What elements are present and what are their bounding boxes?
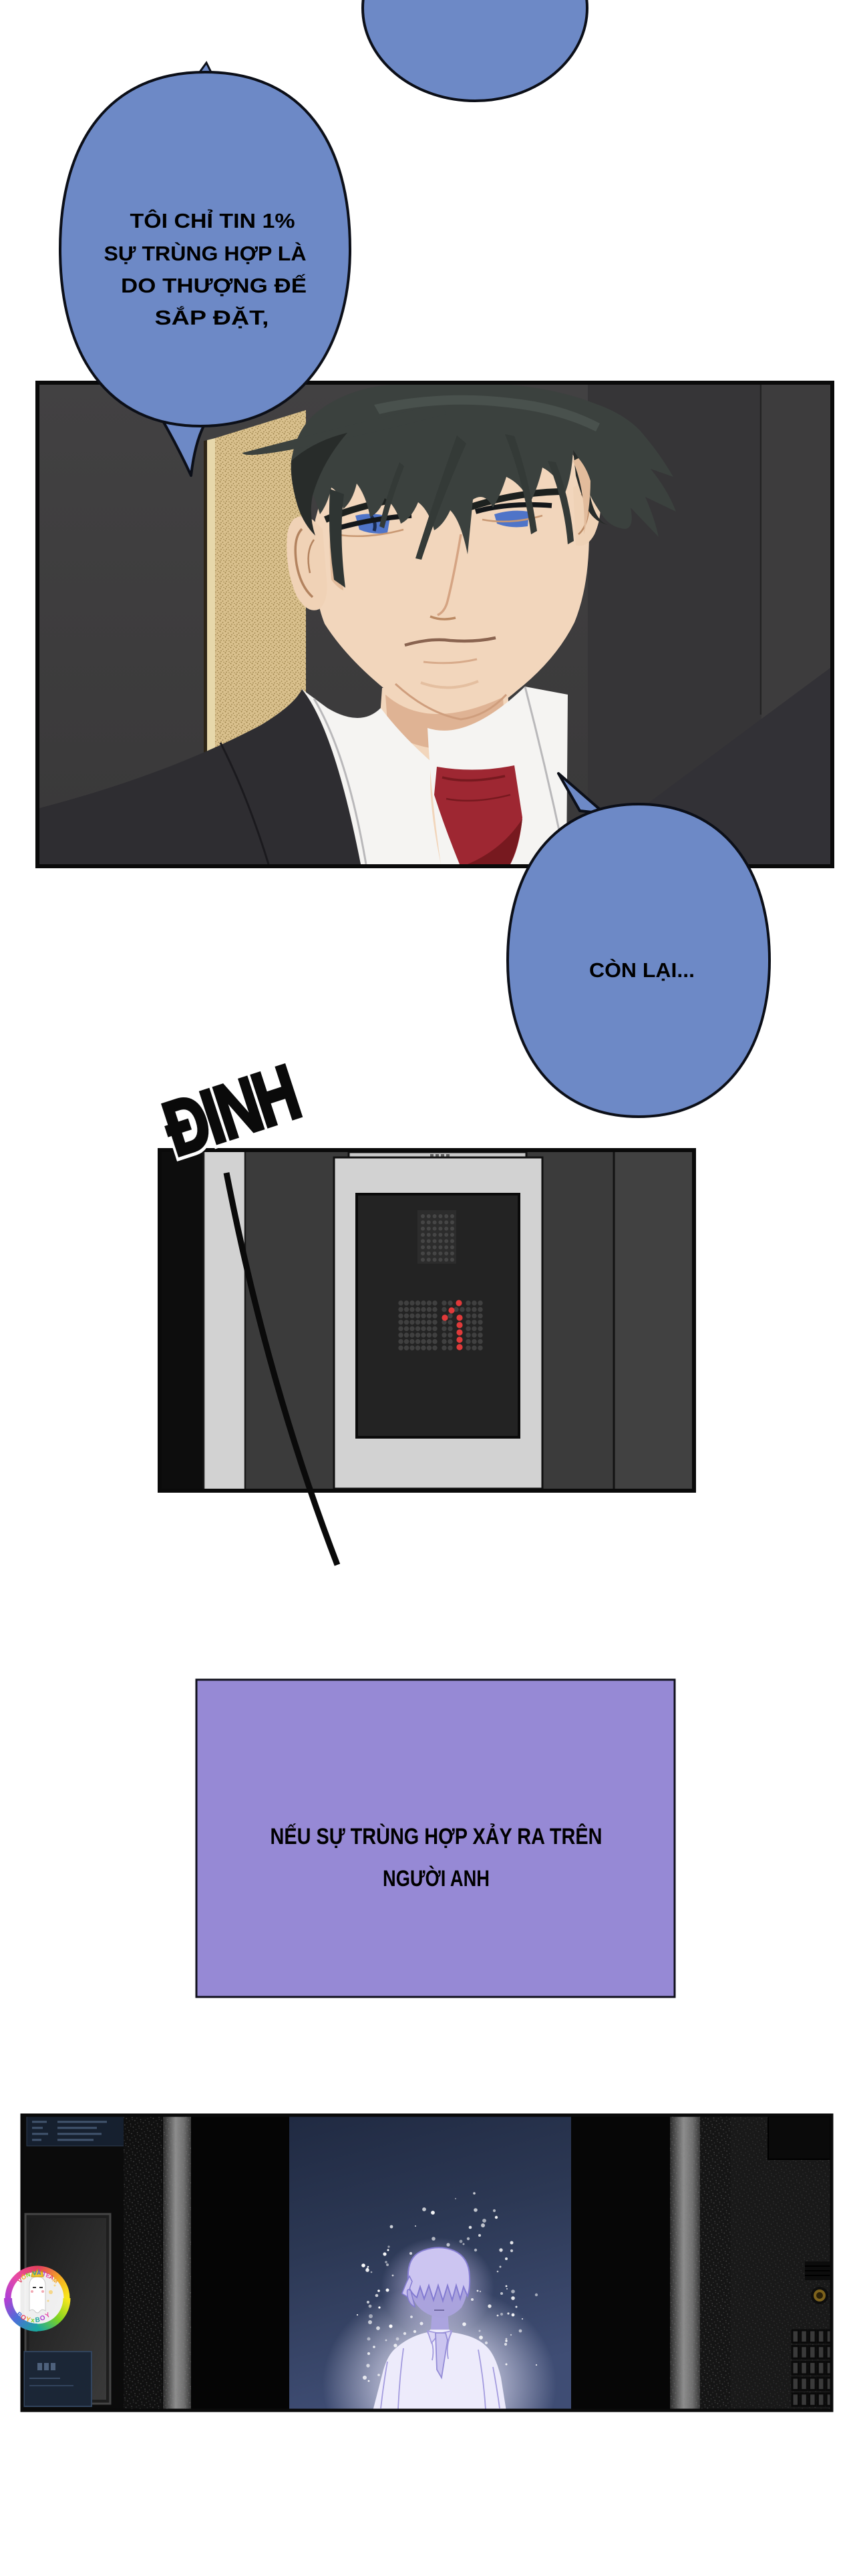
svg-text:DO THƯỢNG ĐẾ: DO THƯỢNG ĐẾ: [121, 274, 307, 297]
svg-text:NẾU SỰ TRÙNG HỢP XẢY RA TRÊN: NẾU SỰ TRÙNG HỢP XẢY RA TRÊN: [271, 1824, 603, 1849]
svg-text:SỰ TRÙNG HỢP LÀ: SỰ TRÙNG HỢP LÀ: [104, 241, 307, 265]
svg-text:SẮP ĐẶT,: SẮP ĐẶT,: [155, 305, 269, 329]
svg-text:TÔI CHỈ TIN 1%: TÔI CHỈ TIN 1%: [130, 208, 295, 232]
svg-text:À: À: [37, 2269, 41, 2276]
svg-text:CÒN LẠI...: CÒN LẠI...: [589, 958, 695, 982]
svg-text:NGƯỜI ANH: NGƯỜI ANH: [383, 1866, 490, 1891]
